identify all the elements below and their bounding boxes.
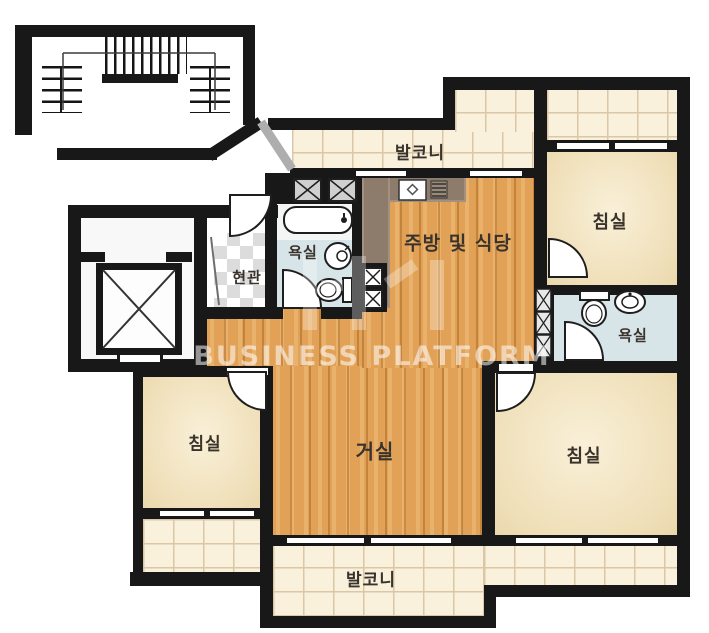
wall <box>265 173 277 317</box>
wall <box>15 25 32 135</box>
wall <box>133 366 143 582</box>
wall <box>268 118 455 130</box>
window <box>514 536 584 545</box>
window <box>208 509 256 518</box>
stairs-landing <box>102 74 178 83</box>
wall <box>260 366 273 628</box>
wall <box>57 148 217 160</box>
elevator-jamb <box>166 252 192 262</box>
window <box>613 141 669 151</box>
bathroom-second-floor <box>552 293 677 363</box>
wall <box>205 307 283 319</box>
stairs-left-flight <box>42 66 82 113</box>
wall <box>206 117 265 161</box>
wall <box>321 307 362 319</box>
wall <box>534 285 677 295</box>
room-label-entrance: 현관 <box>232 267 262 288</box>
stairs-right-stringer <box>209 66 211 113</box>
window <box>468 169 524 178</box>
room-label-living-room: 거실 <box>356 436 395 465</box>
room-label-bedroom-top-right: 침실 <box>592 208 627 234</box>
balcony-top-upper-floor <box>455 88 535 132</box>
floor-plan: 발코니 침실 주방 및 식당 욕실 현관 욕실 거실 침실 침실 발코니 BUS… <box>0 0 709 633</box>
watermark-text: BUSINESS PLATFORM <box>187 341 557 372</box>
room-label-bedroom-left: 침실 <box>188 430 221 455</box>
room-label-balcony-top: 발코니 <box>395 139 445 164</box>
room-label-balcony-bottom: 발코니 <box>346 566 396 591</box>
wall <box>130 572 272 586</box>
room-label-kitchen-dining: 주방 및 식당 <box>404 229 512 256</box>
stove-backing <box>359 263 387 312</box>
wall <box>534 77 547 297</box>
window <box>285 536 366 545</box>
room-label-bathroom-main: 욕실 <box>288 242 318 263</box>
stairs-left-stringer <box>60 66 62 113</box>
wall <box>443 77 690 90</box>
room-label-bedroom-bottom-right: 침실 <box>566 442 601 468</box>
balcony-bottom-left-floor <box>143 519 262 573</box>
wall <box>352 173 362 319</box>
wall <box>243 25 255 125</box>
window <box>354 169 408 178</box>
bedroom-top-right-balcony-floor <box>547 88 677 144</box>
window <box>369 536 453 545</box>
balcony-bottom-right-floor <box>484 543 677 587</box>
wall <box>677 77 690 597</box>
window <box>555 141 611 151</box>
wall <box>482 361 495 545</box>
bathroom-main-tub-area <box>277 204 352 241</box>
wall <box>262 616 495 628</box>
elevator-jamb <box>81 252 105 262</box>
window <box>586 536 660 545</box>
elevator-car <box>96 263 182 355</box>
wall <box>484 585 690 597</box>
elevator-door <box>117 352 163 365</box>
room-label-bathroom-second: 욕실 <box>618 325 648 346</box>
window <box>158 509 206 518</box>
stairs-center-flight <box>105 36 187 74</box>
